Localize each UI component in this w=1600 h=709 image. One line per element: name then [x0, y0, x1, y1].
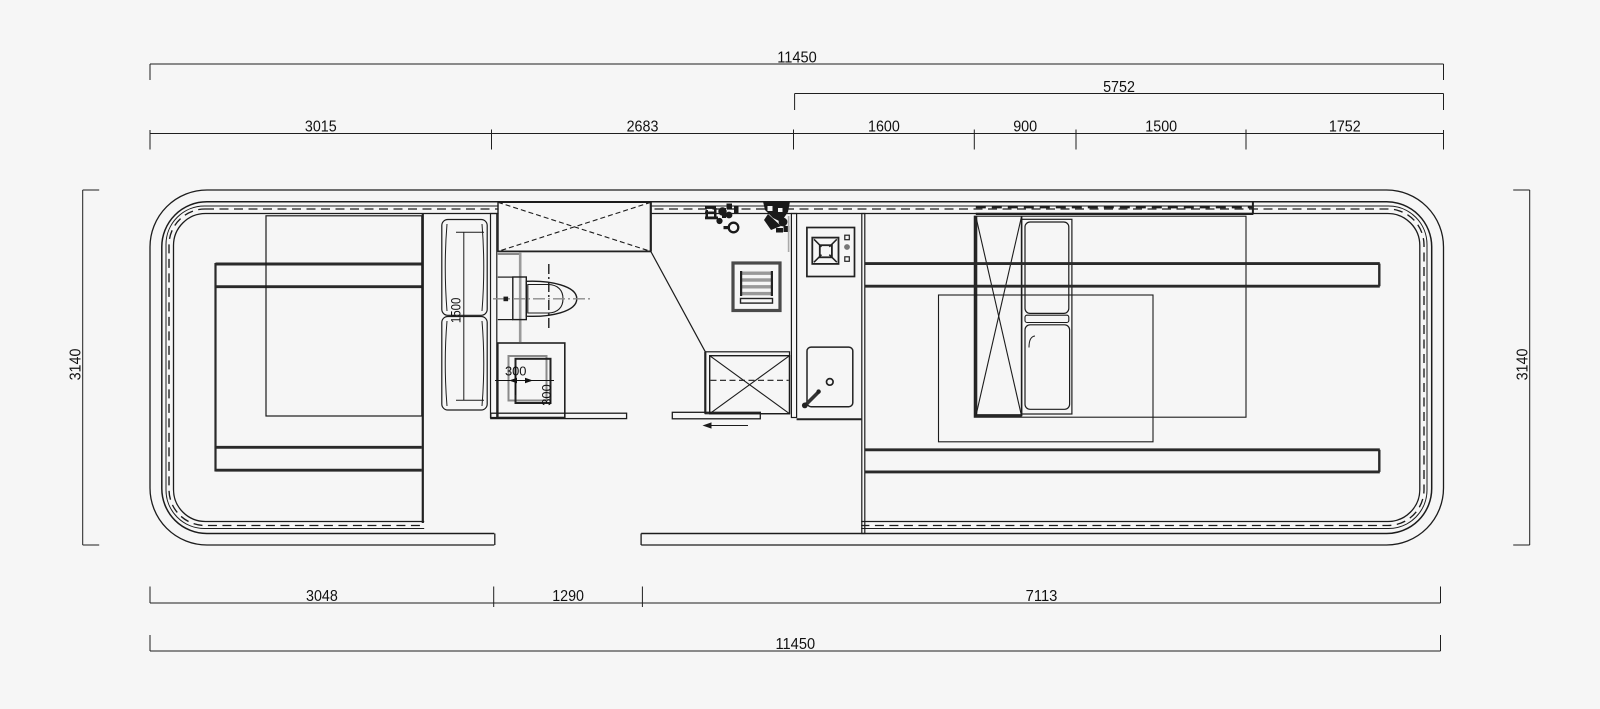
svg-text:2683: 2683 [627, 119, 659, 136]
svg-text:1600: 1600 [868, 119, 900, 136]
svg-text:1290: 1290 [552, 588, 584, 605]
svg-text:3140: 3140 [68, 349, 85, 381]
svg-text:5752: 5752 [1103, 79, 1135, 96]
svg-text:3048: 3048 [306, 588, 338, 605]
svg-text:900: 900 [1013, 119, 1037, 136]
svg-text:1752: 1752 [1329, 119, 1361, 136]
svg-text:1500: 1500 [448, 297, 464, 323]
svg-text:11450: 11450 [777, 49, 817, 66]
svg-text:11450: 11450 [776, 636, 816, 653]
svg-text:300: 300 [539, 384, 554, 406]
svg-text:3140: 3140 [1515, 349, 1532, 381]
svg-text:1500: 1500 [1145, 119, 1177, 136]
svg-text:7113: 7113 [1026, 588, 1058, 605]
svg-text:3015: 3015 [305, 119, 337, 136]
